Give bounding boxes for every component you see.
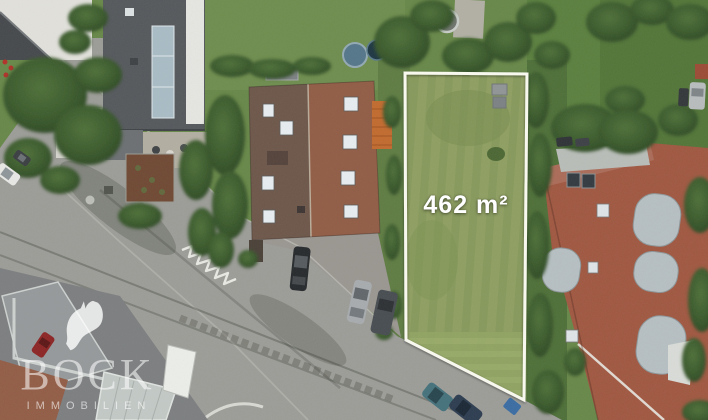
brand-watermark: BOCK IMMOBILIEN [8,296,164,412]
horse-head-icon [60,296,112,356]
brand-name: BOCK [8,353,164,397]
plot-area-label: 462 m² [423,191,508,220]
brand-subtitle: IMMOBILIEN [8,400,164,412]
aerial-property-photo: 462 m² BOCK IMMOBILIEN [0,0,708,420]
